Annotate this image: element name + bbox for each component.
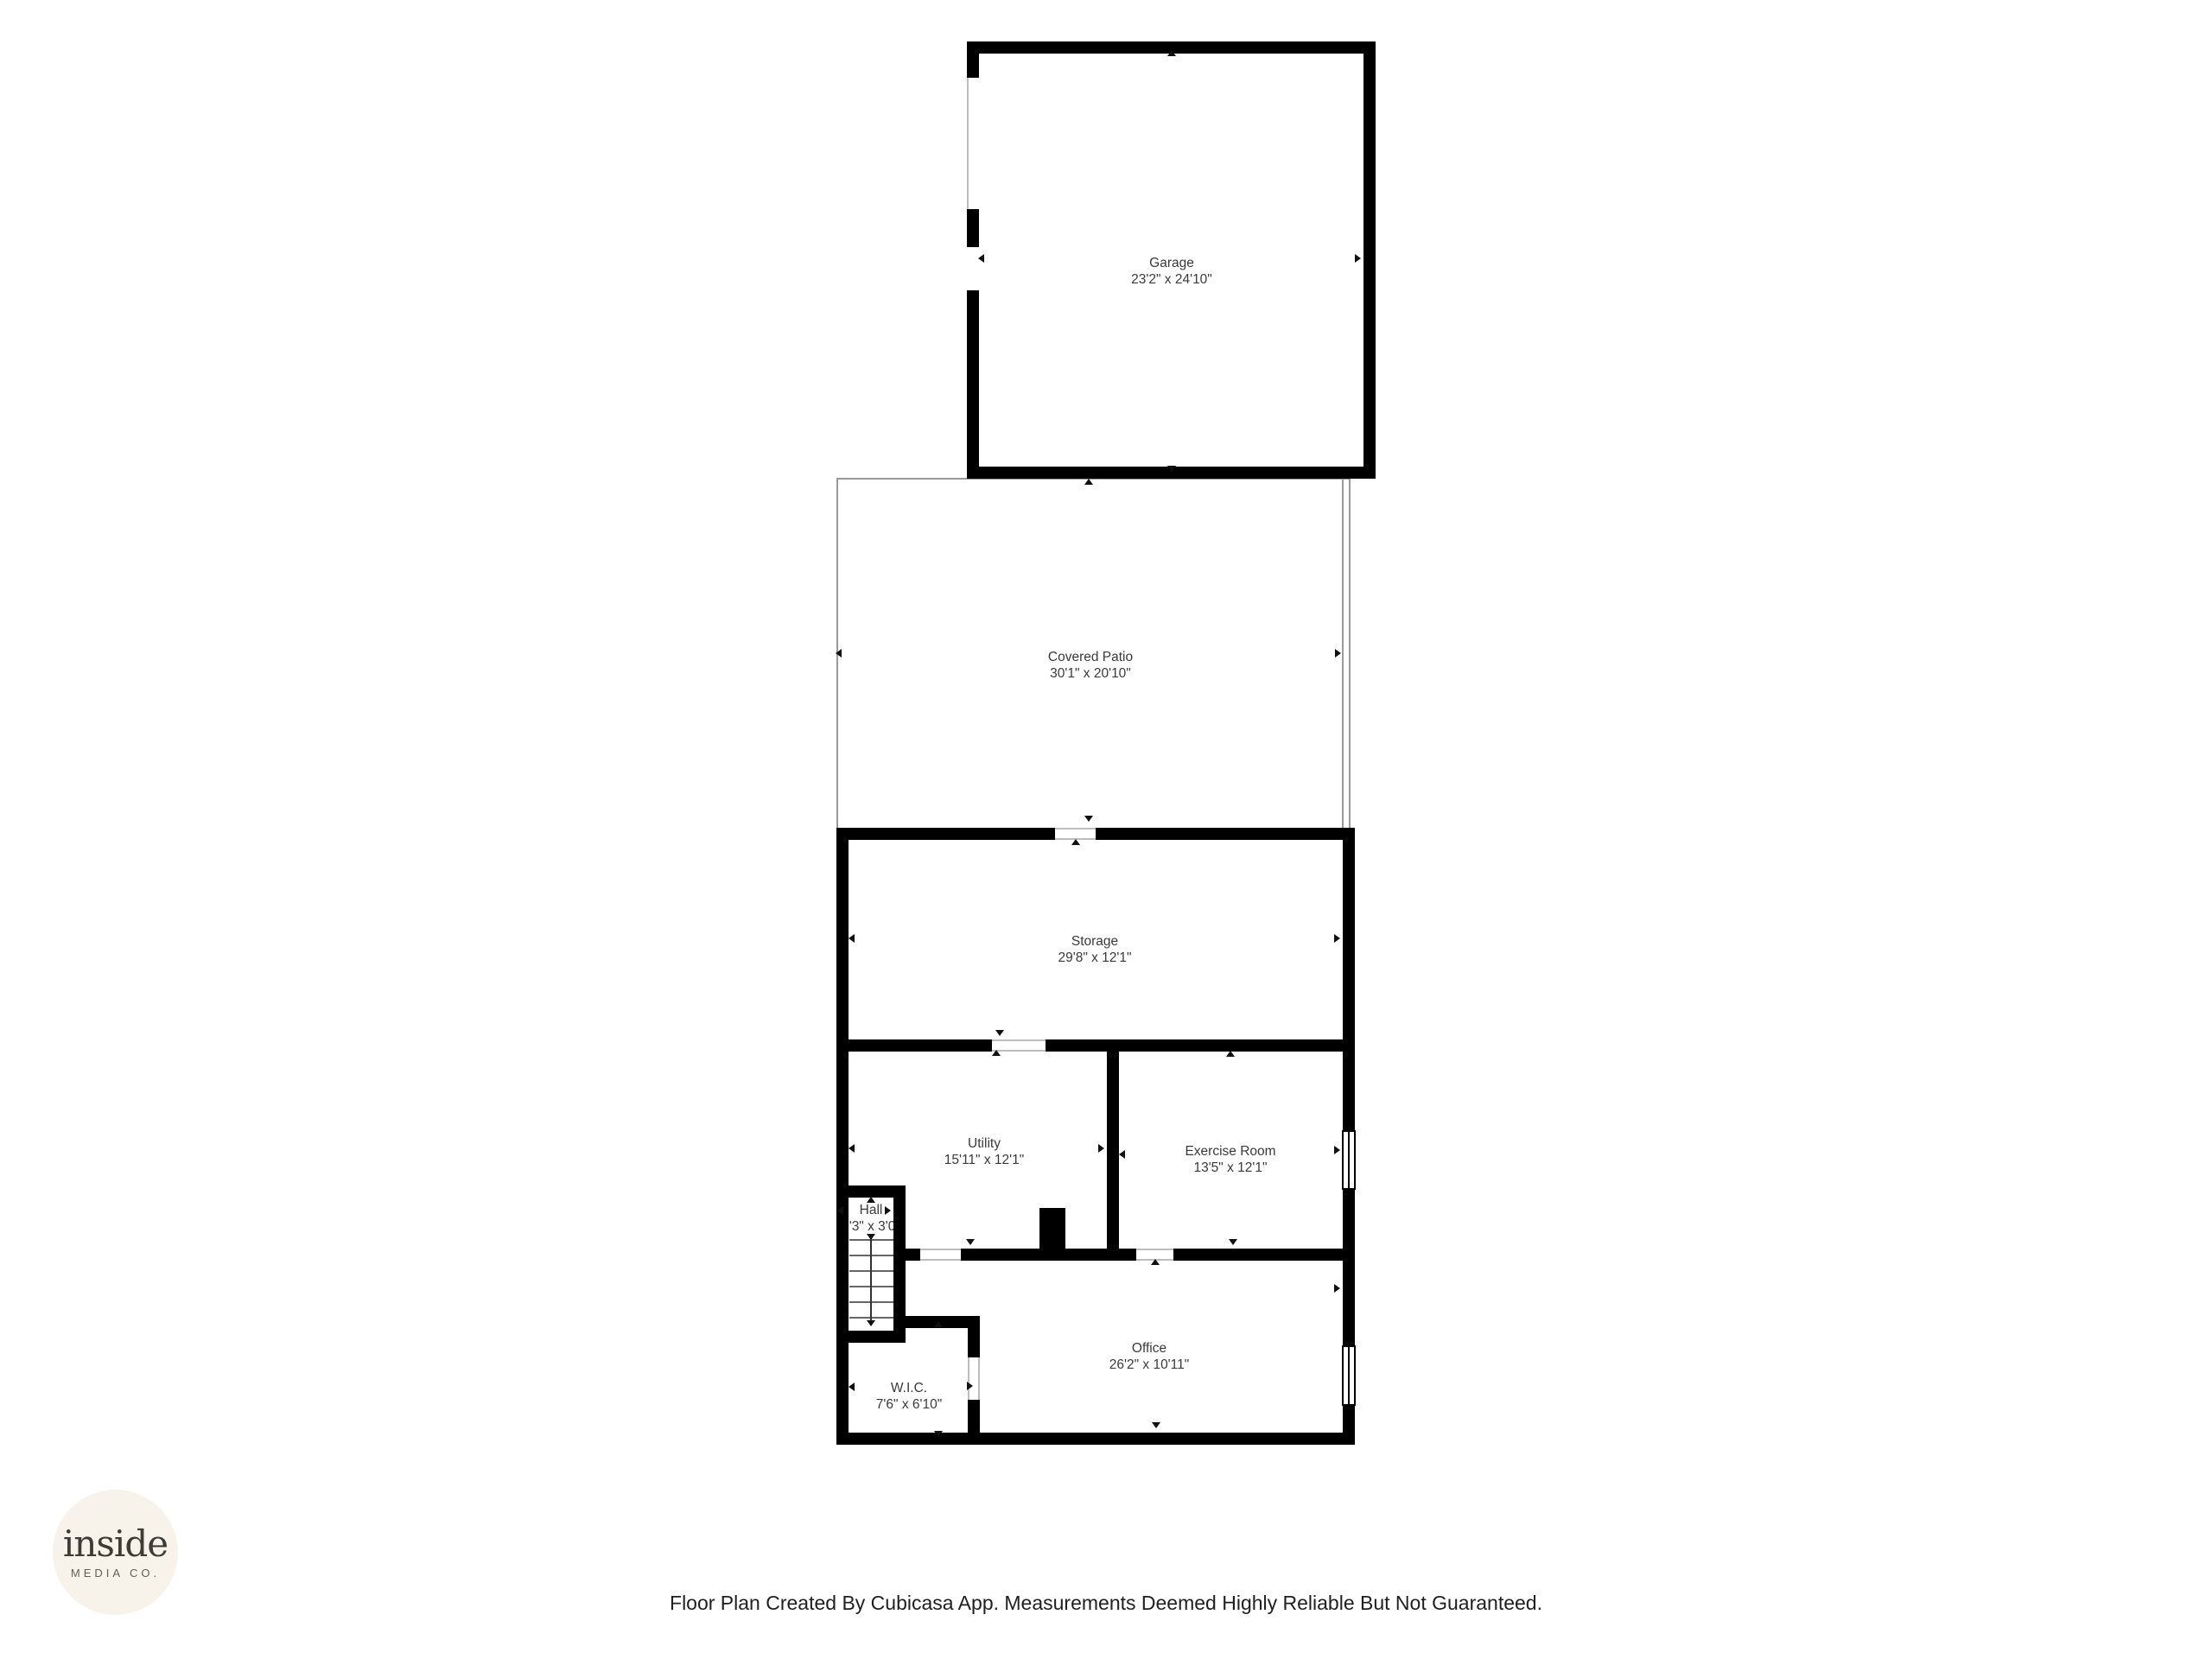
window-icon [1342, 1130, 1356, 1190]
measure-arrow [849, 1144, 855, 1153]
room-name-hall: Hall [842, 1202, 900, 1218]
measure-arrow [1334, 934, 1340, 943]
window-icon [1342, 1345, 1356, 1406]
wall-segment [1343, 1190, 1355, 1345]
measure-arrow [1334, 1284, 1340, 1293]
room-label-utility: Utility 15'11" x 12'1" [944, 1135, 1024, 1168]
room-name-covered-patio: Covered Patio [1048, 649, 1133, 665]
measure-arrow [849, 934, 855, 943]
room-label-covered-patio: Covered Patio 30'1" x 20'10" [1048, 649, 1133, 682]
measure-arrow [1226, 1051, 1235, 1057]
measure-arrow [1167, 50, 1176, 56]
room-dims-office: 26'2" x 10'11" [1109, 1357, 1189, 1373]
wall-segment [1173, 1249, 1343, 1261]
measure-arrow [966, 1239, 975, 1245]
wall-segment [836, 828, 849, 1445]
logo-subtext: MEDIA CO. [71, 1567, 160, 1580]
measure-arrow [867, 1234, 875, 1240]
room-dims-storage: 29'8" x 12'1" [1058, 950, 1131, 966]
measure-arrow [967, 1382, 973, 1390]
room-dims-garage: 23'2" x 24'10" [1131, 271, 1212, 288]
opening-line [992, 1039, 1046, 1041]
wall-segment [836, 828, 1055, 840]
opening-line [1055, 828, 1096, 829]
patio-outline-line [1342, 478, 1344, 828]
wall-segment [1039, 1208, 1065, 1261]
room-label-storage: Storage 29'8" x 12'1" [1058, 933, 1131, 966]
measure-arrow [867, 1320, 875, 1326]
wall-segment [849, 1039, 992, 1052]
room-name-wic: W.I.C. [876, 1380, 942, 1396]
measure-arrow [1152, 1422, 1160, 1428]
room-dims-covered-patio: 30'1" x 20'10" [1048, 665, 1133, 682]
room-label-hall: Hall 3'3" x 3'0" [842, 1202, 900, 1235]
room-name-exercise-room: Exercise Room [1185, 1143, 1275, 1160]
room-name-office: Office [1109, 1340, 1189, 1357]
measure-arrow [1071, 839, 1080, 845]
room-name-garage: Garage [1131, 255, 1212, 271]
measure-arrow [1229, 1239, 1237, 1245]
room-label-office: Office 26'2" x 10'11" [1109, 1340, 1189, 1373]
room-name-utility: Utility [944, 1135, 1024, 1152]
opening-line [967, 78, 969, 209]
measure-arrow [885, 1206, 891, 1215]
measure-arrow [1084, 816, 1093, 822]
opening-line [1136, 1249, 1173, 1250]
room-dims-exercise-room: 13'5" x 12'1" [1185, 1160, 1275, 1176]
room-label-garage: Garage 23'2" x 24'10" [1131, 255, 1212, 288]
footer-disclaimer: Floor Plan Created By Cubicasa App. Meas… [0, 1592, 2212, 1615]
measure-arrow [1084, 479, 1093, 485]
measure-arrow [978, 254, 984, 263]
logo-text: inside [63, 1525, 168, 1563]
wall-segment [967, 290, 979, 479]
measure-arrow [849, 1382, 855, 1391]
opening-line [920, 1259, 961, 1261]
measure-arrow [1098, 1144, 1104, 1153]
measure-arrow [1335, 649, 1341, 658]
measure-arrow [1119, 1150, 1125, 1159]
measure-arrow [837, 1206, 843, 1215]
measure-arrow [992, 1050, 1001, 1056]
measure-arrow [995, 1030, 1004, 1036]
room-dims-utility: 15'11" x 12'1" [944, 1152, 1024, 1168]
room-dims-hall: 3'3" x 3'0" [842, 1218, 900, 1235]
wall-segment [1096, 828, 1355, 840]
measure-arrow [867, 1197, 875, 1203]
wall-segment [1363, 41, 1376, 479]
wall-segment [968, 1328, 980, 1357]
opening-line [968, 1357, 969, 1400]
room-label-exercise-room: Exercise Room 13'5" x 12'1" [1185, 1143, 1275, 1176]
wall-segment [1343, 828, 1355, 1130]
measure-arrow [1355, 254, 1361, 263]
patio-outline-line [1349, 478, 1351, 828]
wall-segment [968, 1400, 980, 1445]
wall-segment [836, 1185, 906, 1198]
opening-line [920, 1249, 961, 1250]
wall-segment [836, 1433, 1355, 1445]
wall-segment [1046, 1039, 1343, 1052]
wall-segment [967, 209, 979, 247]
room-label-wic: W.I.C. 7'6" x 6'10" [876, 1380, 942, 1413]
floor-plan: Garage 23'2" x 24'10" Covered Patio 30'1… [0, 0, 2212, 1659]
stair-direction-line [870, 1234, 872, 1324]
room-name-storage: Storage [1058, 933, 1131, 950]
measure-arrow [836, 649, 842, 658]
measure-arrow [934, 1431, 943, 1437]
measure-arrow [934, 1321, 943, 1327]
wall-segment [1107, 1052, 1119, 1249]
room-dims-wic: 7'6" x 6'10" [876, 1396, 942, 1413]
wall-segment [836, 1331, 906, 1343]
floor-plan-page: Garage 23'2" x 24'10" Covered Patio 30'1… [0, 0, 2212, 1659]
wall-segment [967, 41, 979, 78]
measure-arrow [1334, 1146, 1340, 1154]
measure-arrow [1167, 466, 1176, 472]
opening-line [978, 1357, 980, 1400]
measure-arrow [1151, 1259, 1160, 1265]
